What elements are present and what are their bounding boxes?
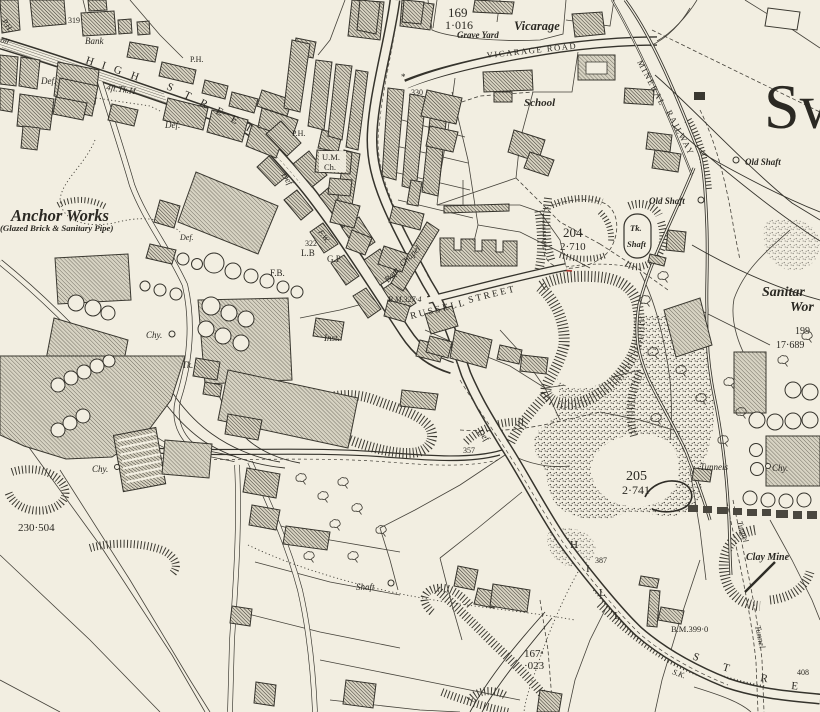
svg-text:1·016: 1·016 xyxy=(445,18,473,32)
svg-text:2·741: 2·741 xyxy=(622,483,650,497)
svg-text:230·504: 230·504 xyxy=(18,522,55,534)
svg-text:F.B.: F.B. xyxy=(270,268,285,278)
svg-text:Shaft: Shaft xyxy=(627,239,647,249)
svg-text:I: I xyxy=(586,563,590,575)
svg-text:Shaft: Shaft xyxy=(356,582,375,592)
svg-text:Def.: Def. xyxy=(164,120,180,130)
svg-text:Def.: Def. xyxy=(40,76,56,86)
svg-text:408: 408 xyxy=(797,668,809,677)
svg-text:Inst.: Inst. xyxy=(323,333,340,343)
svg-text:B.M.399·0: B.M.399·0 xyxy=(671,624,708,634)
svg-text:G.P: G.P xyxy=(327,254,341,264)
svg-text:167ᵃ: 167ᵃ xyxy=(524,648,544,660)
svg-text:Sw: Sw xyxy=(764,71,820,142)
svg-text:204: 204 xyxy=(563,225,583,240)
svg-text:Old Shaft: Old Shaft xyxy=(745,157,781,167)
svg-text:322: 322 xyxy=(305,239,317,248)
svg-text:*: * xyxy=(401,72,406,82)
svg-text:Vicarage: Vicarage xyxy=(514,19,560,33)
svg-text:Bank: Bank xyxy=(85,36,104,46)
svg-text:2·710: 2·710 xyxy=(560,241,586,253)
svg-text:P.H.: P.H. xyxy=(292,129,305,138)
svg-text:357: 357 xyxy=(463,446,475,455)
svg-text:387: 387 xyxy=(595,556,607,565)
svg-text:Tk.: Tk. xyxy=(182,360,193,370)
svg-text:Sanitar: Sanitar xyxy=(762,285,805,300)
svg-text:330: 330 xyxy=(411,88,423,97)
svg-text:Wor: Wor xyxy=(790,300,814,315)
svg-text:H: H xyxy=(570,539,578,551)
svg-text:L.B: L.B xyxy=(301,248,315,258)
svg-text:Old Shaft: Old Shaft xyxy=(649,196,685,206)
svg-text:17·689: 17·689 xyxy=(776,340,804,351)
svg-text:Chy.: Chy. xyxy=(92,464,108,474)
svg-text:School: School xyxy=(524,97,556,109)
svg-text:Def.: Def. xyxy=(179,233,194,242)
svg-text:L: L xyxy=(614,610,621,622)
svg-text:205: 205 xyxy=(626,469,647,484)
svg-text:L: L xyxy=(599,587,606,599)
svg-text:U.M.: U.M. xyxy=(322,152,340,162)
svg-text:Chy.: Chy. xyxy=(146,330,162,340)
svg-text:P.H.: P.H. xyxy=(190,55,203,64)
svg-text:Ch.: Ch. xyxy=(324,162,336,172)
svg-text:Tunnels: Tunnels xyxy=(700,462,729,472)
svg-text:Chy.: Chy. xyxy=(772,463,788,473)
svg-text:Tk.: Tk. xyxy=(630,223,642,233)
svg-text:(Glazed Brick & Sanitary Pipe): (Glazed Brick & Sanitary Pipe) xyxy=(0,223,113,233)
svg-text:·023: ·023 xyxy=(524,660,545,672)
svg-text:B.M.327·4: B.M.327·4 xyxy=(388,295,422,304)
svg-text:Clay Mine: Clay Mine xyxy=(746,552,790,563)
svg-text:199: 199 xyxy=(795,326,810,337)
svg-text:319: 319 xyxy=(68,16,80,25)
